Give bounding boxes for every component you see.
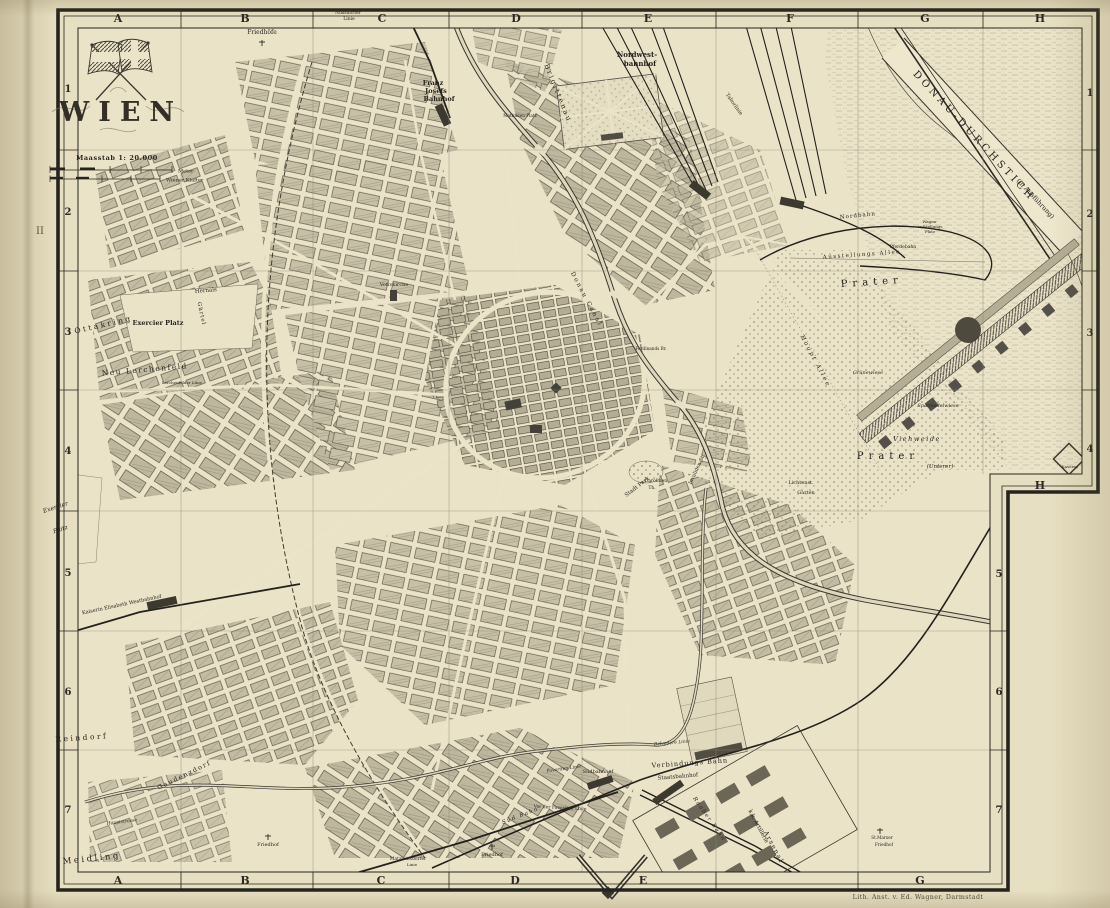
vienna-map: ABCDEFGHABCDEG12345671234567H (0, 0, 1110, 908)
map-label: Mathilden Platz (503, 113, 537, 118)
scanned-map-page: ABCDEFGHABCDEG12345671234567H (0, 0, 1110, 908)
grid-number-right-5: 5 (996, 569, 1003, 580)
map-label: Südbahnhof (583, 769, 615, 775)
map-label: Garten (797, 490, 815, 496)
map-label: Josefs (424, 87, 447, 95)
augarten-park (556, 74, 663, 150)
map-label: Prater (857, 451, 919, 462)
map-label: Th. (648, 485, 656, 491)
map-label: Carolinen (645, 478, 667, 484)
grid-letter-bottom-C: C (377, 874, 386, 887)
map-label: bahnhof (624, 59, 657, 68)
grid-number-left-2: 2 (65, 207, 72, 218)
map-label: Platz (925, 229, 935, 234)
grid-number-left-5: 5 (65, 568, 72, 579)
map-label: Ferdinands Br. (635, 346, 666, 351)
grid-letter-bottom-B: B (240, 874, 249, 887)
map-title: WIEN (58, 97, 183, 128)
exercier-platz-area (120, 284, 258, 352)
grid-number-left-4: 4 (65, 446, 72, 457)
map-label: (Unterer) (927, 463, 953, 470)
map-label: Viehweide (893, 435, 941, 443)
map-label: Grünewiese (853, 370, 883, 376)
map-label: Linie (407, 862, 418, 867)
map-label: Friedhöfe (247, 29, 277, 36)
map-label: St.Marxer (871, 835, 893, 840)
map-label: Friedhof (257, 842, 280, 848)
map-label: Bahnhof (423, 95, 455, 103)
grid-letter-bottom-G: G (915, 874, 924, 887)
grid-number-left-3: 3 (65, 327, 72, 338)
map-interior (38, 10, 1110, 908)
map-label: Friedhof (481, 852, 504, 858)
grid-letter-bottom-D: D (510, 874, 520, 887)
map-label: Lerchenfelder Linie (162, 380, 203, 385)
map-label: Friedhof (875, 842, 894, 847)
grid-number-left-7: 7 (65, 805, 72, 816)
grid-letter-notch-H: H (1035, 479, 1045, 492)
grid-letter-bottom-E: E (639, 874, 647, 887)
map-label: Franz (423, 79, 444, 87)
grid-number-left-6: 6 (65, 687, 72, 698)
scale-statement: Maasstab 1: 20.000 (76, 154, 158, 162)
map-label: Spannadelwiese (917, 403, 958, 409)
map-label: Votivkirche (379, 282, 409, 288)
map-label: Lichtenst. (788, 480, 814, 486)
map-label: Nordwest- (617, 50, 657, 59)
grid-number-right-6: 6 (996, 687, 1003, 698)
grid-number-right-7: 7 (996, 805, 1003, 816)
meter-unit-label: Meter (178, 169, 194, 175)
map-label: Exercier Platz (133, 319, 184, 327)
klafter-unit-label: Wiener Klafter (166, 178, 204, 184)
grid-letter-bottom-A: A (113, 874, 123, 887)
grid-number-left-1: 1 (65, 84, 72, 95)
map-label: Linie (343, 16, 355, 22)
